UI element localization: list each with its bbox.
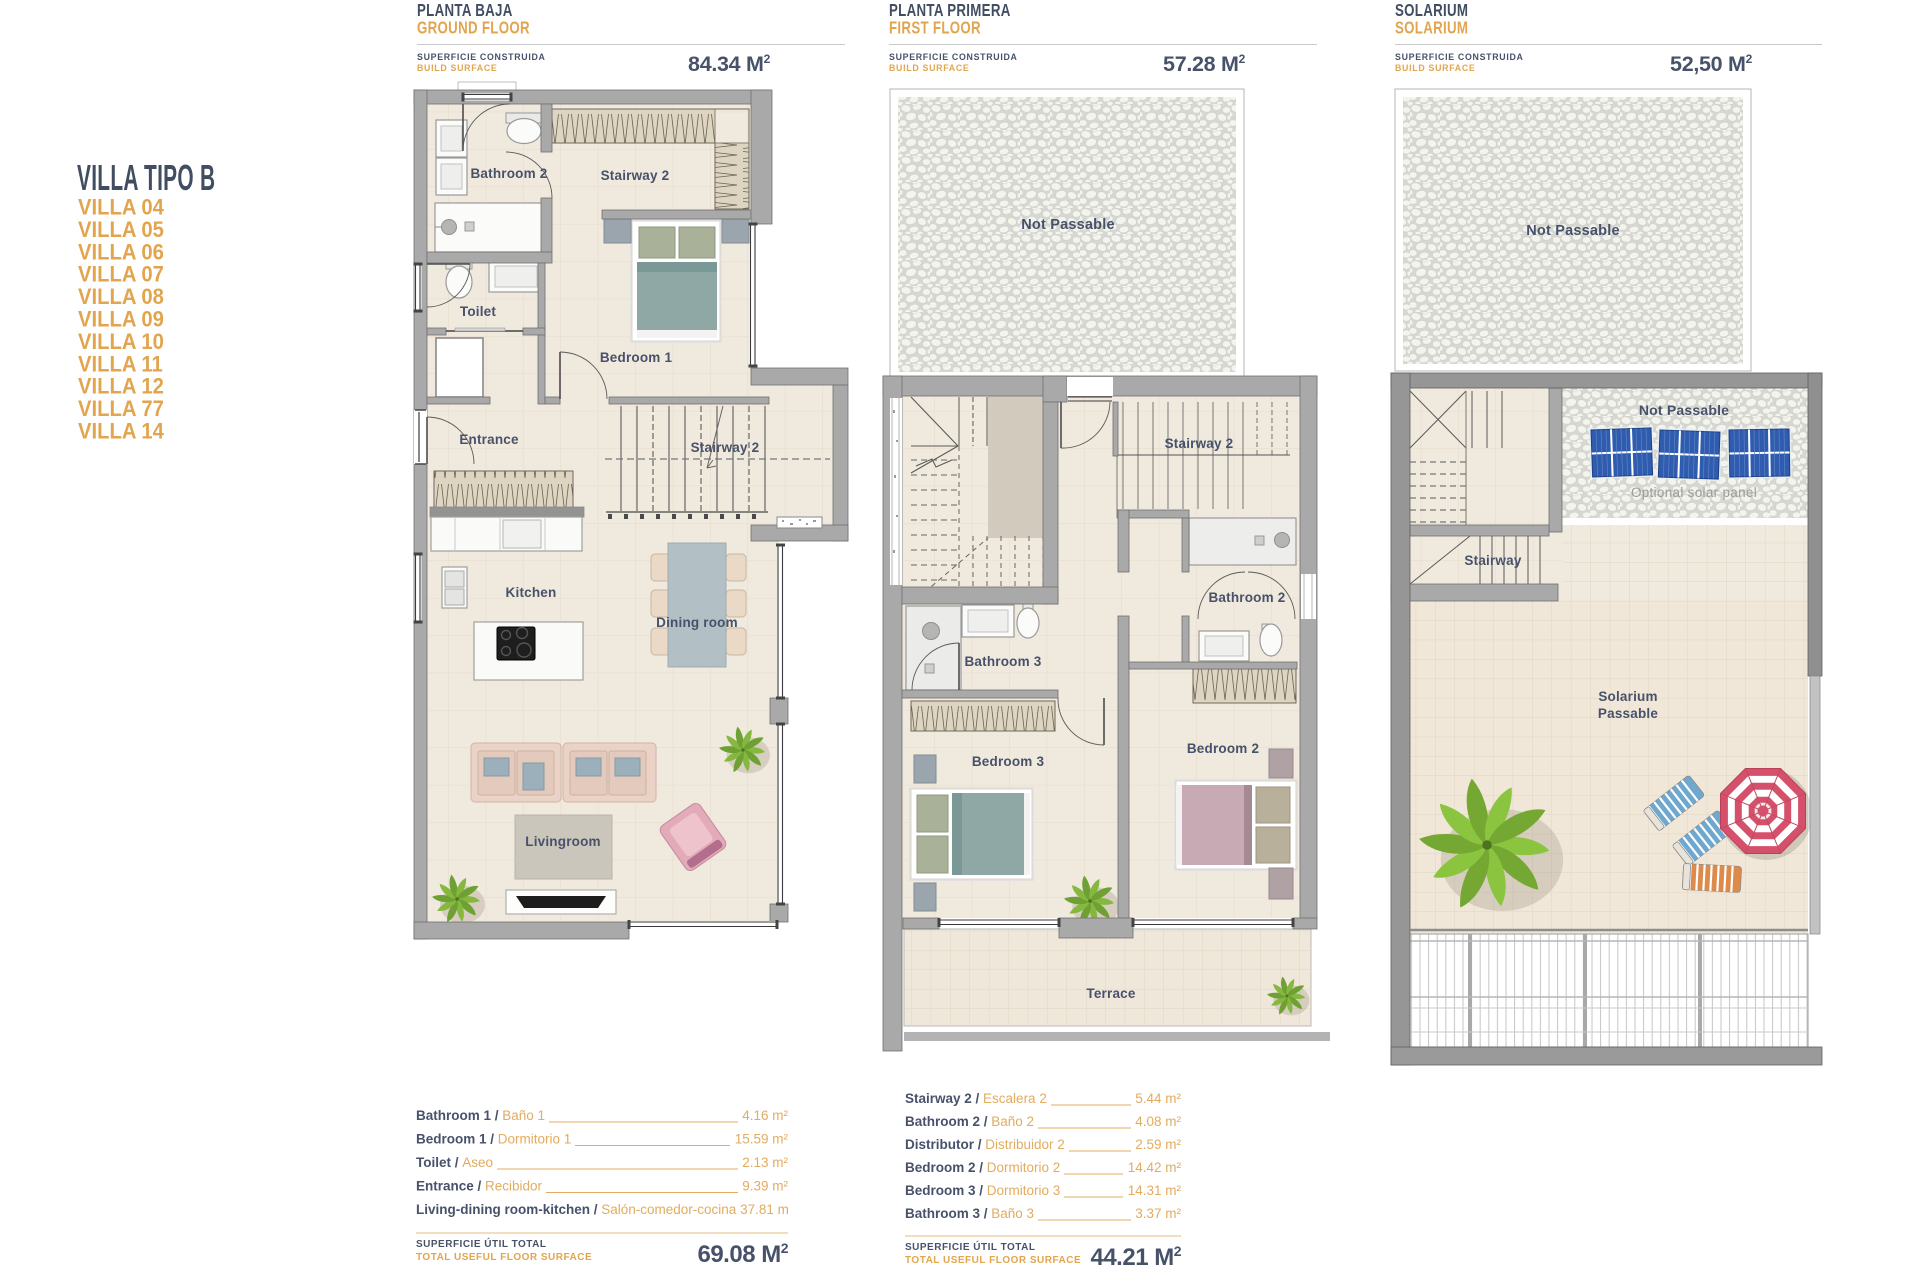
svg-text:Not Passable: Not Passable bbox=[1526, 223, 1619, 239]
svg-text:14.31 m²: 14.31 m² bbox=[1128, 1183, 1182, 1198]
svg-text:Stairway 2: Stairway 2 bbox=[1165, 436, 1234, 451]
svg-text:9.39 m²: 9.39 m² bbox=[742, 1179, 788, 1194]
svg-text:Bathroom 2: Bathroom 2 bbox=[1208, 590, 1285, 605]
svg-text:Bathroom 2: Bathroom 2 bbox=[470, 166, 547, 181]
svg-text:Living-dining room-kitchen / S: Living-dining room-kitchen / Salón-comed… bbox=[416, 1202, 789, 1217]
svg-text:Bedroom 1: Bedroom 1 bbox=[600, 350, 673, 365]
svg-text:Bedroom 3: Bedroom 3 bbox=[972, 754, 1045, 769]
svg-text:SUPERFICIE CONSTRUIDA: SUPERFICIE CONSTRUIDA bbox=[417, 52, 546, 62]
svg-text:3.37 m²: 3.37 m² bbox=[1135, 1206, 1181, 1221]
svg-text:4.16 m²: 4.16 m² bbox=[742, 1108, 788, 1123]
svg-text:SUPERFICIE CONSTRUIDA: SUPERFICIE CONSTRUIDA bbox=[889, 52, 1018, 62]
svg-text:5.44 m²: 5.44 m² bbox=[1135, 1091, 1181, 1106]
svg-text:Toilet / Aseo: Toilet / Aseo bbox=[416, 1155, 493, 1170]
svg-text:BUILD SURFACE: BUILD SURFACE bbox=[417, 63, 497, 73]
svg-text:Stairway: Stairway bbox=[1464, 553, 1521, 568]
svg-text:SUPERFICIE CONSTRUIDA: SUPERFICIE CONSTRUIDA bbox=[1395, 52, 1524, 62]
svg-text:Bedroom 2 / Dormitorio 2: Bedroom 2 / Dormitorio 2 bbox=[905, 1160, 1060, 1175]
svg-text:Bathroom 3: Bathroom 3 bbox=[964, 654, 1041, 669]
svg-text:14.42 m²: 14.42 m² bbox=[1128, 1160, 1182, 1175]
svg-text:Bathroom 1 / Baño 1: Bathroom 1 / Baño 1 bbox=[416, 1108, 545, 1123]
svg-text:Not Passable: Not Passable bbox=[1639, 402, 1729, 418]
svg-text:Bathroom 3 / Baño 3: Bathroom 3 / Baño 3 bbox=[905, 1206, 1034, 1221]
svg-text:Solarium: Solarium bbox=[1598, 689, 1657, 704]
svg-text:Bedroom 1 / Dormitorio 1: Bedroom 1 / Dormitorio 1 bbox=[416, 1132, 571, 1147]
svg-text:Not Passable: Not Passable bbox=[1021, 217, 1114, 233]
svg-text:44.21 M2: 44.21 M2 bbox=[1090, 1243, 1181, 1271]
svg-text:Passable: Passable bbox=[1598, 706, 1658, 721]
svg-text:Dining room: Dining room bbox=[656, 615, 738, 630]
svg-text:VILLA TIPO B: VILLA TIPO B bbox=[77, 158, 215, 198]
svg-text:Entrance / Recibidor: Entrance / Recibidor bbox=[416, 1179, 543, 1194]
svg-text:Bathroom 2 / Baño 2: Bathroom 2 / Baño 2 bbox=[905, 1114, 1034, 1129]
svg-text:TOTAL USEFUL FLOOR SURFACE: TOTAL USEFUL FLOOR SURFACE bbox=[416, 1252, 592, 1263]
svg-text:VILLA 14: VILLA 14 bbox=[78, 419, 164, 444]
svg-text:Bedroom 2: Bedroom 2 bbox=[1187, 741, 1259, 756]
svg-text:52,50 M2: 52,50 M2 bbox=[1670, 52, 1753, 76]
svg-text:Stairway 2: Stairway 2 bbox=[691, 440, 760, 455]
svg-text:PLANTA BAJA: PLANTA BAJA bbox=[417, 1, 513, 20]
svg-text:SOLARIUM: SOLARIUM bbox=[1395, 19, 1468, 38]
svg-text:Stairway 2: Stairway 2 bbox=[601, 168, 670, 183]
svg-text:SUPERFICIE ÚTIL TOTAL: SUPERFICIE ÚTIL TOTAL bbox=[905, 1240, 1036, 1253]
svg-text:BUILD SURFACE: BUILD SURFACE bbox=[889, 63, 969, 73]
svg-text:Stairway 2 / Escalera 2: Stairway 2 / Escalera 2 bbox=[905, 1091, 1047, 1106]
svg-text:TOTAL USEFUL FLOOR SURFACE: TOTAL USEFUL FLOOR SURFACE bbox=[905, 1255, 1081, 1266]
svg-text:Entrance: Entrance bbox=[459, 432, 519, 447]
svg-text:2.13 m²: 2.13 m² bbox=[742, 1155, 788, 1170]
svg-text:84.34 M2: 84.34 M2 bbox=[688, 52, 771, 76]
svg-text:BUILD SURFACE: BUILD SURFACE bbox=[1395, 63, 1475, 73]
svg-text:Livingroom: Livingroom bbox=[525, 834, 601, 849]
svg-text:69.08 M2: 69.08 M2 bbox=[697, 1240, 788, 1268]
svg-text:Bedroom 3 / Dormitorio 3: Bedroom 3 / Dormitorio 3 bbox=[905, 1183, 1060, 1198]
svg-text:2.59 m²: 2.59 m² bbox=[1135, 1137, 1181, 1152]
svg-text:Optional solar panel: Optional solar panel bbox=[1631, 485, 1757, 500]
svg-text:Distributor / Distribuidor 2: Distributor / Distribuidor 2 bbox=[905, 1137, 1065, 1152]
svg-text:SOLARIUM: SOLARIUM bbox=[1395, 1, 1468, 20]
svg-text:FIRST FLOOR: FIRST FLOOR bbox=[889, 19, 981, 38]
svg-text:Toilet: Toilet bbox=[460, 304, 497, 319]
svg-text:57.28 M2: 57.28 M2 bbox=[1163, 52, 1246, 76]
svg-text:SUPERFICIE ÚTIL TOTAL: SUPERFICIE ÚTIL TOTAL bbox=[416, 1237, 547, 1250]
svg-text:15.59 m²: 15.59 m² bbox=[735, 1132, 789, 1147]
svg-text:4.08 m²: 4.08 m² bbox=[1135, 1114, 1181, 1129]
svg-text:GROUND FLOOR: GROUND FLOOR bbox=[417, 19, 530, 38]
svg-text:Kitchen: Kitchen bbox=[506, 585, 557, 600]
svg-text:PLANTA PRIMERA: PLANTA PRIMERA bbox=[889, 1, 1011, 20]
svg-text:Terrace: Terrace bbox=[1086, 986, 1135, 1001]
